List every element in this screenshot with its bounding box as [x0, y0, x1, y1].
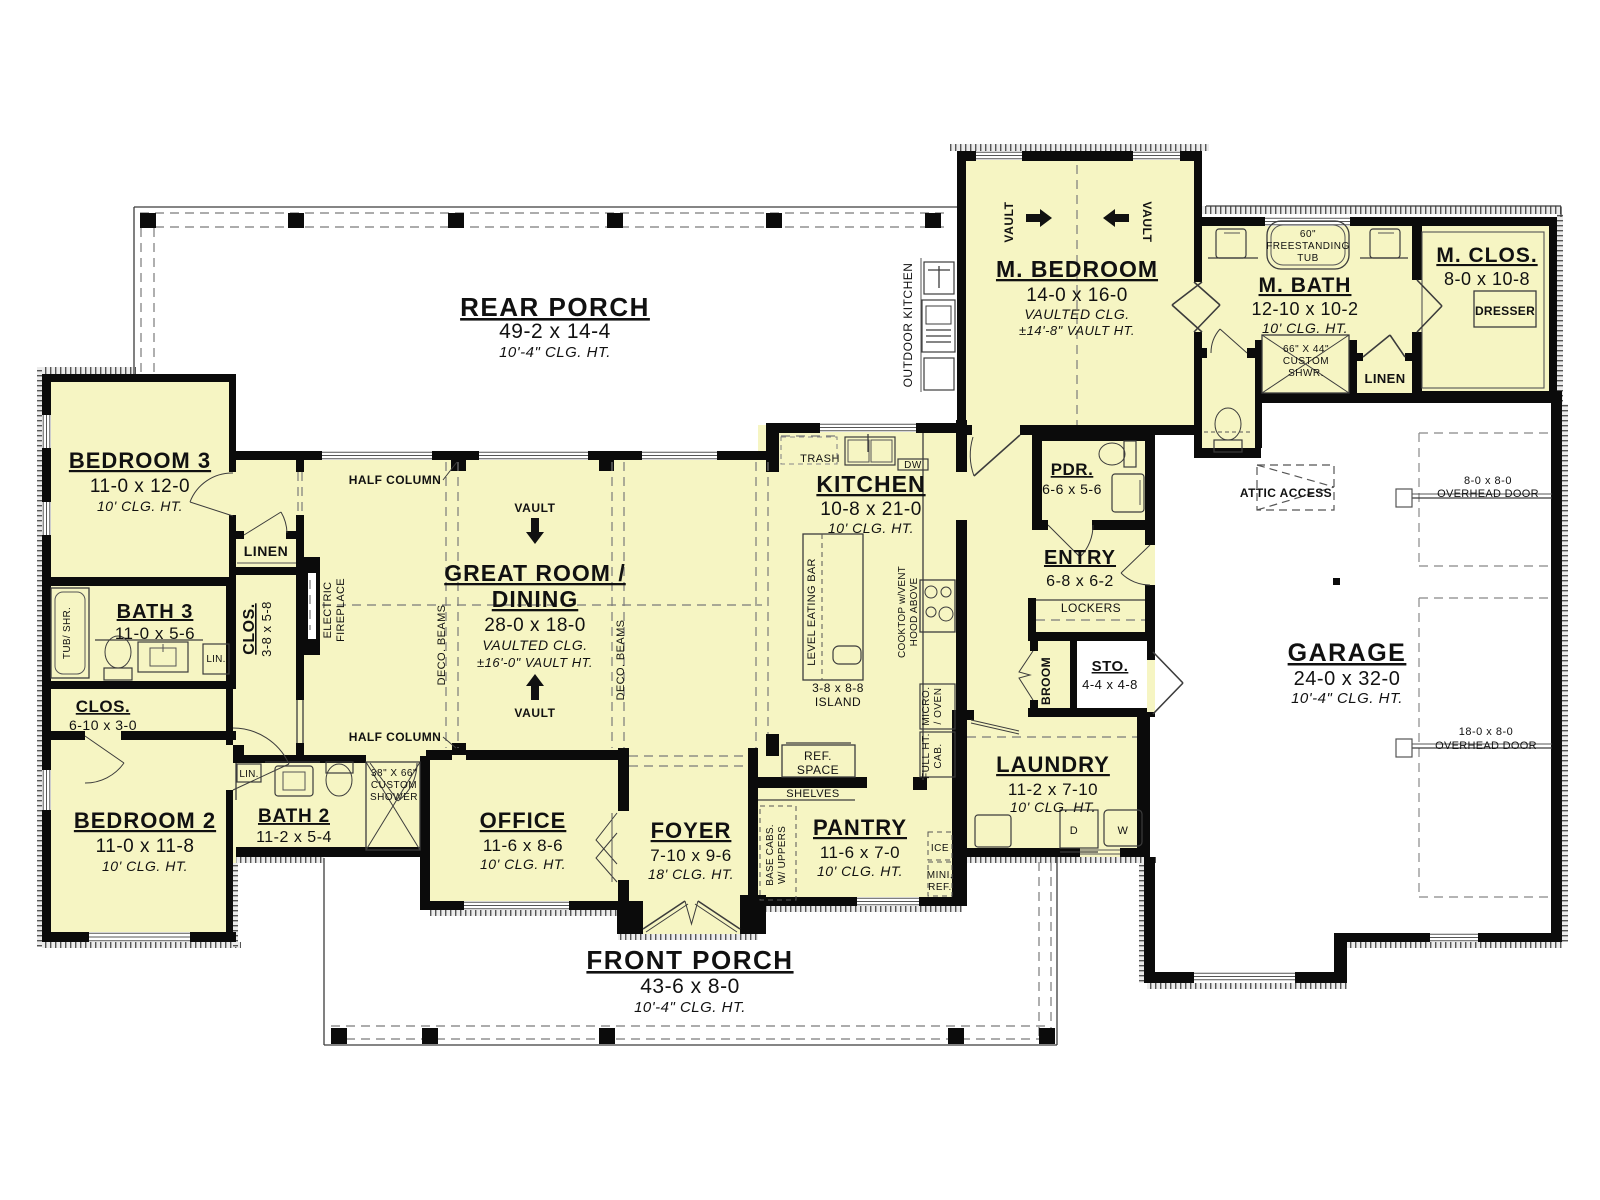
svg-text:FULL HT.: FULL HT. [921, 733, 932, 779]
svg-text:18' CLG. HT.: 18' CLG. HT. [648, 866, 734, 882]
svg-text:10'-4" CLG. HT.: 10'-4" CLG. HT. [634, 999, 746, 1016]
svg-text:CLOS.: CLOS. [76, 697, 130, 716]
svg-text:11-2 x 5-4: 11-2 x 5-4 [256, 829, 332, 846]
svg-text:CUSTOM: CUSTOM [371, 780, 417, 791]
svg-text:LEVEL EATING BAR: LEVEL EATING BAR [806, 558, 818, 666]
svg-text:DECO. BEAMS: DECO. BEAMS [615, 620, 627, 701]
svg-text:LINEN: LINEN [1365, 371, 1406, 386]
svg-text:11-6 x 8-6: 11-6 x 8-6 [483, 836, 563, 855]
svg-text:10-8 x 21-0: 10-8 x 21-0 [820, 499, 922, 520]
svg-text:DINING: DINING [492, 586, 579, 612]
svg-text:ENTRY: ENTRY [1044, 547, 1116, 569]
svg-text:FREESTANDING: FREESTANDING [1266, 241, 1350, 252]
svg-text:11-0 x 5-6: 11-0 x 5-6 [115, 624, 195, 643]
svg-text:SHELVES: SHELVES [786, 788, 839, 800]
svg-text:LINEN: LINEN [244, 543, 289, 559]
svg-text:12-10 x 10-2: 12-10 x 10-2 [1251, 299, 1358, 319]
svg-text:BROOM: BROOM [1039, 657, 1053, 705]
svg-text:3-8 x 5-8: 3-8 x 5-8 [259, 601, 274, 657]
svg-text:ATTIC ACCESS: ATTIC ACCESS [1240, 486, 1332, 500]
svg-text:/ OVEN: / OVEN [933, 688, 944, 725]
svg-text:LIN.: LIN. [239, 769, 258, 780]
svg-text:±16'-0" VAULT HT.: ±16'-0" VAULT HT. [477, 655, 593, 670]
svg-text:11-0 x 12-0: 11-0 x 12-0 [90, 476, 190, 497]
svg-text:ELECTRIC: ELECTRIC [322, 582, 334, 639]
svg-text:OVERHEAD DOOR: OVERHEAD DOOR [1437, 488, 1539, 500]
svg-text:LOCKERS: LOCKERS [1061, 601, 1121, 615]
svg-text:24-0 x 32-0: 24-0 x 32-0 [1294, 668, 1401, 690]
svg-text:66" X 44": 66" X 44" [1283, 344, 1329, 355]
svg-text:REAR PORCH: REAR PORCH [460, 292, 650, 322]
svg-text:STO.: STO. [1092, 658, 1129, 675]
svg-text:PDR.: PDR. [1051, 460, 1094, 479]
svg-text:43-6 x 8-0: 43-6 x 8-0 [640, 975, 740, 998]
svg-text:HALF COLUMN: HALF COLUMN [349, 730, 441, 744]
svg-text:VAULT: VAULT [1140, 201, 1154, 242]
svg-text:HALF COLUMN: HALF COLUMN [349, 473, 441, 487]
svg-text:ISLAND: ISLAND [815, 695, 861, 709]
svg-text:CLOS.: CLOS. [241, 603, 258, 654]
svg-text:3-8 x 8-8: 3-8 x 8-8 [812, 681, 864, 695]
svg-text:4-4 x 4-8: 4-4 x 4-8 [1082, 677, 1138, 692]
svg-text:8-0 x 10-8: 8-0 x 10-8 [1444, 269, 1530, 289]
svg-text:14-0 x 16-0: 14-0 x 16-0 [1026, 285, 1128, 306]
svg-text:D: D [1070, 825, 1078, 837]
svg-text:7-10 x 9-6: 7-10 x 9-6 [650, 846, 732, 865]
svg-text:BEDROOM 3: BEDROOM 3 [69, 448, 211, 473]
svg-text:10' CLG. HT.: 10' CLG. HT. [480, 856, 566, 872]
svg-text:GARAGE: GARAGE [1288, 639, 1407, 667]
svg-text:M. CLOS.: M. CLOS. [1436, 244, 1537, 267]
svg-text:M. BATH: M. BATH [1259, 274, 1352, 297]
svg-text:SHWR.: SHWR. [1288, 368, 1324, 379]
svg-text:DECO. BEAMS: DECO. BEAMS [436, 605, 448, 686]
svg-text:FIREPLACE: FIREPLACE [335, 578, 347, 642]
svg-text:COOKTOP w/VENT: COOKTOP w/VENT [897, 566, 908, 658]
svg-text:W/ UPPERS: W/ UPPERS [777, 826, 788, 884]
svg-text:60": 60" [1300, 229, 1316, 240]
svg-text:FOYER: FOYER [651, 818, 732, 843]
svg-text:TUB: TUB [1297, 253, 1319, 264]
svg-text:SHOWER: SHOWER [370, 792, 418, 803]
svg-text:6-10 x 3-0: 6-10 x 3-0 [69, 717, 137, 733]
svg-text:PANTRY: PANTRY [813, 815, 907, 840]
svg-text:11-2 x 7-10: 11-2 x 7-10 [1008, 780, 1098, 799]
svg-text:DW: DW [904, 460, 922, 471]
svg-text:CUSTOM: CUSTOM [1283, 356, 1329, 367]
svg-text:REF.: REF. [928, 882, 952, 893]
svg-text:28-0 x 18-0: 28-0 x 18-0 [484, 615, 586, 636]
svg-text:10' CLG. HT.: 10' CLG. HT. [817, 863, 903, 879]
svg-text:LIN.: LIN. [206, 654, 225, 665]
svg-text:OUTDOOR KITCHEN: OUTDOOR KITCHEN [901, 263, 915, 388]
svg-text:VAULT: VAULT [1002, 201, 1016, 242]
svg-text:10' CLG. HT.: 10' CLG. HT. [97, 498, 183, 514]
svg-text:±14'-8" VAULT HT.: ±14'-8" VAULT HT. [1019, 323, 1135, 338]
svg-text:MINI.: MINI. [927, 870, 953, 881]
svg-text:10' CLG. HT.: 10' CLG. HT. [1262, 320, 1348, 336]
svg-text:10' CLG. HT.: 10' CLG. HT. [102, 858, 188, 874]
svg-text:HOOD ABOVE: HOOD ABOVE [909, 578, 920, 647]
svg-text:8-0 x 8-0: 8-0 x 8-0 [1464, 475, 1512, 487]
svg-text:VAULT: VAULT [514, 706, 555, 720]
svg-text:SPACE: SPACE [797, 763, 839, 777]
svg-text:11-6 x 7-0: 11-6 x 7-0 [820, 843, 900, 862]
svg-text:VAULTED CLG.: VAULTED CLG. [482, 637, 587, 653]
svg-text:CAB.: CAB. [933, 743, 944, 768]
svg-text:W: W [1118, 825, 1129, 837]
svg-text:TUB/ SHR.: TUB/ SHR. [62, 607, 73, 659]
svg-text:M. BEDROOM: M. BEDROOM [996, 256, 1158, 282]
svg-text:10' CLG. HT.: 10' CLG. HT. [1010, 799, 1096, 815]
svg-text:VAULTED CLG.: VAULTED CLG. [1024, 306, 1129, 322]
svg-text:BATH 2: BATH 2 [258, 806, 330, 827]
svg-text:DRESSER: DRESSER [1475, 304, 1535, 318]
svg-text:18-0 x 8-0: 18-0 x 8-0 [1459, 726, 1514, 738]
svg-text:BASE CABS.: BASE CABS. [765, 824, 776, 885]
svg-text:OFFICE: OFFICE [480, 808, 567, 833]
svg-text:FRONT PORCH: FRONT PORCH [586, 945, 793, 975]
svg-text:10'-4" CLG. HT.: 10'-4" CLG. HT. [499, 344, 611, 361]
svg-text:GREAT ROOM /: GREAT ROOM / [444, 560, 626, 586]
svg-text:BEDROOM 2: BEDROOM 2 [74, 808, 216, 833]
svg-text:KITCHEN: KITCHEN [816, 471, 925, 497]
svg-text:ICE: ICE [931, 843, 949, 854]
svg-text:LAUNDRY: LAUNDRY [996, 752, 1110, 777]
svg-text:MICRO.: MICRO. [921, 686, 932, 725]
svg-text:11-0 x 11-8: 11-0 x 11-8 [96, 836, 195, 857]
svg-text:TRASH: TRASH [800, 453, 840, 465]
svg-text:REF.: REF. [804, 749, 832, 763]
svg-text:VAULT: VAULT [514, 501, 555, 515]
svg-text:10' CLG. HT.: 10' CLG. HT. [828, 520, 914, 536]
svg-text:10'-4" CLG. HT.: 10'-4" CLG. HT. [1291, 690, 1403, 707]
svg-text:6-8 x 6-2: 6-8 x 6-2 [1046, 573, 1114, 590]
svg-text:6-6 x 5-6: 6-6 x 5-6 [1042, 481, 1102, 497]
svg-text:OVERHEAD DOOR: OVERHEAD DOOR [1435, 740, 1537, 752]
svg-text:49-2 x 14-4: 49-2 x 14-4 [499, 320, 611, 343]
svg-text:BATH 3: BATH 3 [117, 601, 194, 623]
